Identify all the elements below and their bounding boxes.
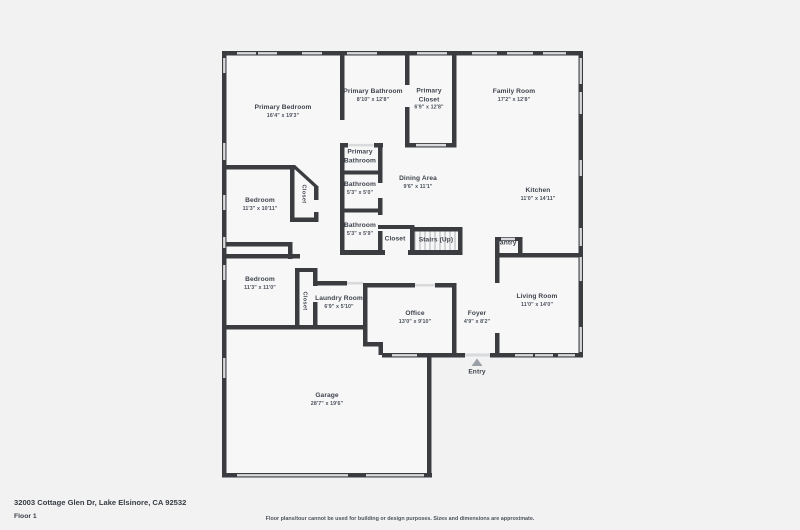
footer-address: 32003 Cottage Glen Dr, Lake Elsinore, CA…	[14, 498, 186, 507]
footer-disclaimer: Floor plans/tour cannot be used for buil…	[0, 516, 800, 522]
floor-plan-drawing	[0, 0, 800, 530]
floor-area	[222, 51, 583, 478]
floor-plan-page: Primary Bedroom16'4" x 19'3"Primary Bath…	[0, 0, 800, 530]
entry-arrow-icon	[472, 359, 483, 367]
